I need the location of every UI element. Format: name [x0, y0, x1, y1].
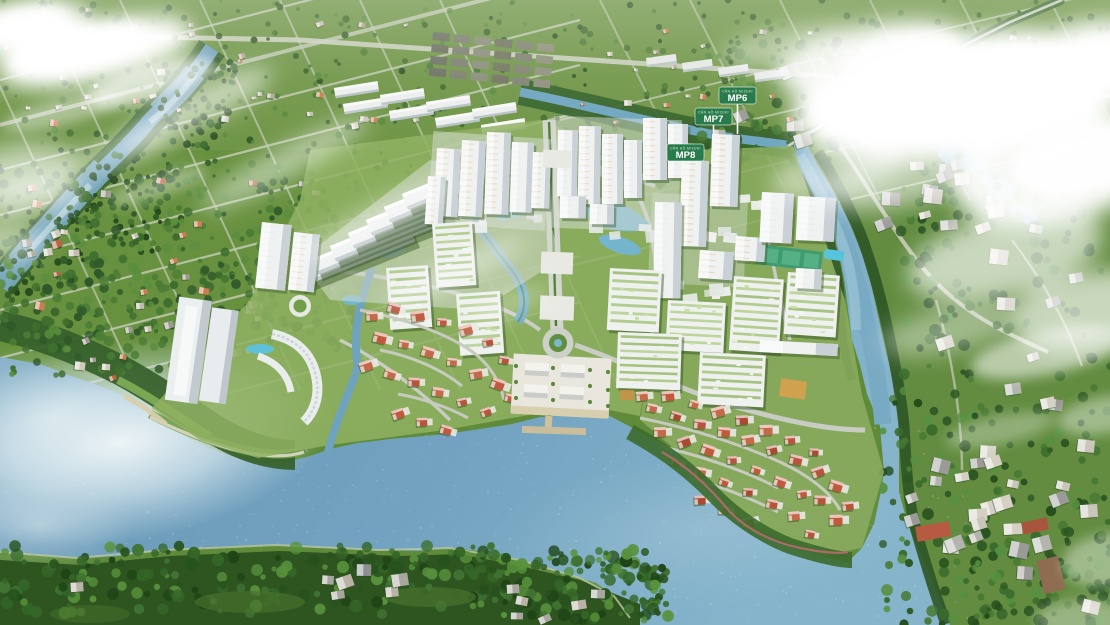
svg-text:MP7: MP7: [704, 114, 724, 125]
svg-text:MP8: MP8: [676, 150, 696, 161]
svg-text:MP6: MP6: [728, 93, 748, 104]
